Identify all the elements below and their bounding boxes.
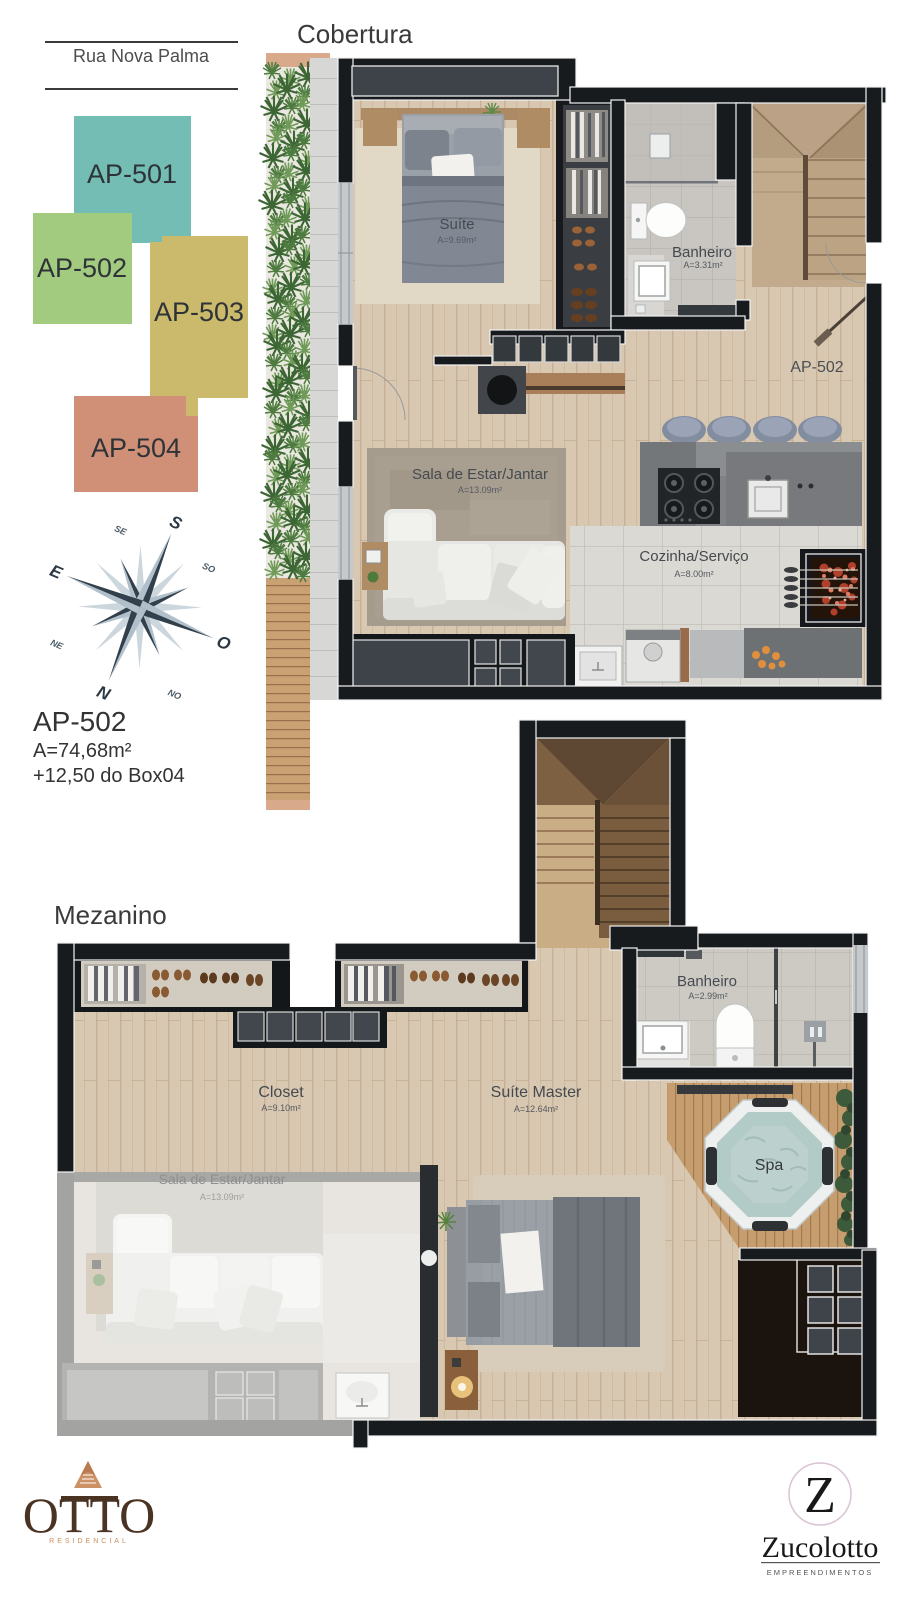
svg-text:Spa: Spa	[755, 1157, 784, 1174]
svg-text:A=74,68m²: A=74,68m²	[33, 740, 132, 762]
svg-text:AP-504: AP-504	[91, 433, 181, 463]
svg-text:Suíte Master: Suíte Master	[491, 1084, 582, 1101]
svg-text:Cobertura: Cobertura	[297, 19, 413, 49]
svg-text:Cozinha/Serviço: Cozinha/Serviço	[639, 548, 748, 565]
svg-text:AP-502: AP-502	[790, 359, 843, 376]
svg-text:Banheiro: Banheiro	[677, 973, 737, 990]
svg-text:A=3.31m²: A=3.31m²	[683, 260, 722, 270]
svg-text:A=8.00m²: A=8.00m²	[674, 569, 713, 579]
svg-text:Z: Z	[804, 1467, 836, 1524]
svg-text:Banheiro: Banheiro	[672, 244, 732, 261]
svg-text:Rua Nova Palma: Rua Nova Palma	[73, 46, 210, 66]
svg-text:Zucolotto: Zucolotto	[762, 1531, 879, 1564]
svg-text:A=9.10m²: A=9.10m²	[261, 1103, 300, 1113]
svg-text:OTTO: OTTO	[23, 1487, 155, 1543]
svg-text:+12,50 do Box04: +12,50 do Box04	[33, 765, 185, 787]
svg-text:A=13.09m²: A=13.09m²	[458, 485, 502, 495]
svg-text:Suíte: Suíte	[439, 216, 474, 233]
svg-text:RESIDENCIAL: RESIDENCIAL	[49, 1538, 129, 1545]
svg-text:AP-502: AP-502	[33, 706, 126, 737]
svg-text:A=13.09m²: A=13.09m²	[200, 1192, 244, 1202]
svg-text:Sala de Estar/Jantar: Sala de Estar/Jantar	[159, 1171, 286, 1187]
svg-text:A=12.64m²: A=12.64m²	[514, 1104, 558, 1114]
svg-text:AP-503: AP-503	[154, 297, 244, 327]
svg-text:Closet: Closet	[258, 1084, 304, 1101]
svg-text:A=2.99m²: A=2.99m²	[688, 991, 727, 1001]
svg-text:Sala de Estar/Jantar: Sala de Estar/Jantar	[412, 466, 548, 483]
svg-text:A=9.69m²: A=9.69m²	[437, 235, 476, 245]
svg-text:EMPREENDIMENTOS: EMPREENDIMENTOS	[767, 1568, 874, 1577]
svg-text:Mezanino: Mezanino	[54, 900, 167, 930]
svg-text:AP-502: AP-502	[37, 253, 127, 283]
svg-text:AP-501: AP-501	[87, 159, 177, 189]
